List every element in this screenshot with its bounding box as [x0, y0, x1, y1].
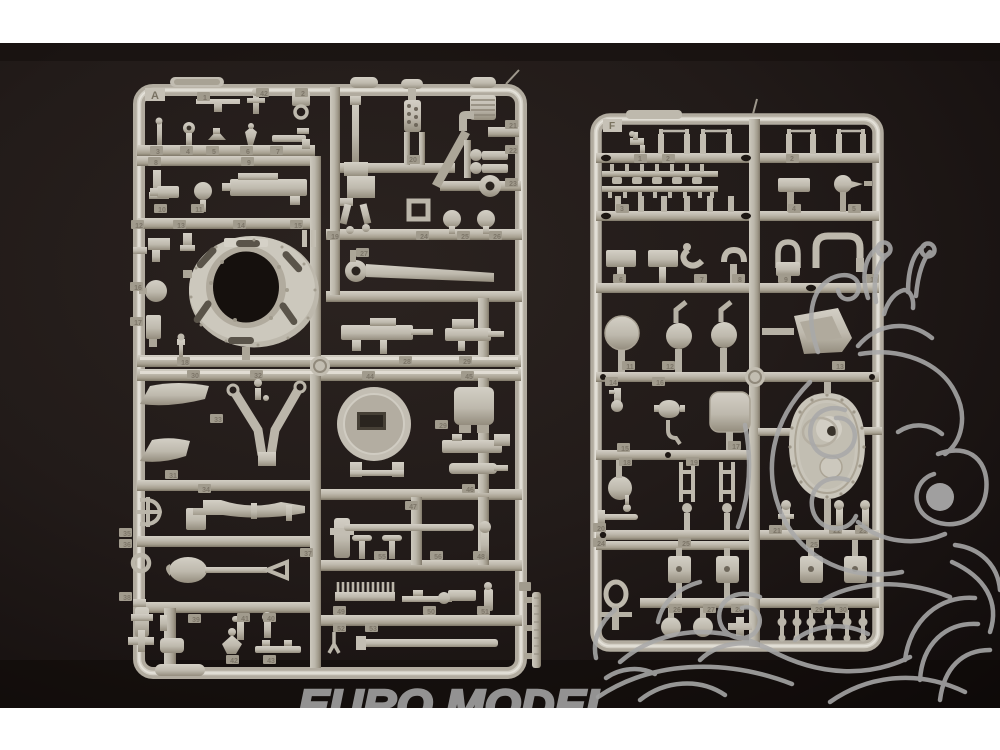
- svg-text:24: 24: [597, 541, 605, 548]
- svg-text:2: 2: [666, 156, 670, 163]
- svg-text:40: 40: [267, 616, 275, 623]
- svg-text:8: 8: [738, 277, 742, 284]
- svg-text:21: 21: [509, 123, 517, 130]
- svg-text:15: 15: [294, 223, 302, 230]
- svg-text:23: 23: [509, 181, 517, 188]
- svg-text:50: 50: [427, 609, 435, 616]
- svg-text:13: 13: [836, 364, 844, 371]
- svg-text:42: 42: [230, 658, 238, 665]
- svg-text:35: 35: [123, 531, 131, 538]
- svg-text:37: 37: [304, 551, 312, 558]
- svg-text:27: 27: [360, 251, 368, 258]
- svg-text:51: 51: [481, 609, 489, 616]
- svg-text:6: 6: [619, 277, 623, 284]
- svg-text:45: 45: [465, 374, 473, 381]
- svg-text:26: 26: [673, 607, 681, 614]
- svg-text:22: 22: [509, 148, 517, 155]
- svg-text:17: 17: [134, 320, 142, 327]
- svg-text:6: 6: [246, 149, 250, 156]
- svg-text:4: 4: [792, 206, 796, 213]
- svg-text:47: 47: [409, 504, 417, 511]
- svg-text:43: 43: [267, 658, 275, 665]
- svg-text:29: 29: [463, 359, 471, 366]
- svg-text:3: 3: [620, 206, 624, 213]
- svg-text:56: 56: [434, 554, 442, 561]
- svg-text:52: 52: [337, 626, 345, 633]
- svg-text:21: 21: [773, 528, 781, 535]
- svg-text:27: 27: [707, 607, 715, 614]
- svg-text:33: 33: [214, 417, 222, 424]
- svg-text:29: 29: [439, 423, 447, 430]
- svg-text:7: 7: [700, 277, 704, 284]
- svg-text:7: 7: [276, 149, 280, 156]
- svg-text:2: 2: [301, 91, 305, 98]
- svg-text:20: 20: [597, 526, 605, 533]
- svg-text:25: 25: [682, 541, 690, 548]
- svg-text:30: 30: [839, 607, 847, 614]
- svg-text:26: 26: [493, 234, 501, 241]
- svg-text:31: 31: [169, 473, 177, 480]
- svg-text:41: 41: [241, 616, 249, 623]
- svg-text:28: 28: [403, 359, 411, 366]
- svg-text:1: 1: [203, 95, 207, 102]
- svg-text:19: 19: [331, 234, 339, 241]
- svg-text:11: 11: [195, 207, 203, 214]
- svg-text:12: 12: [135, 223, 143, 230]
- svg-text:29: 29: [815, 607, 823, 614]
- svg-text:25: 25: [810, 542, 818, 549]
- svg-text:17: 17: [732, 444, 740, 451]
- svg-text:18: 18: [623, 460, 631, 467]
- svg-text:13: 13: [177, 223, 185, 230]
- svg-text:A: A: [151, 90, 159, 102]
- svg-text:53: 53: [369, 626, 377, 633]
- svg-text:9: 9: [247, 160, 251, 167]
- svg-text:30: 30: [191, 373, 199, 380]
- svg-text:55: 55: [378, 554, 386, 561]
- svg-text:15: 15: [621, 446, 629, 453]
- svg-text:39: 39: [192, 617, 200, 624]
- svg-text:16: 16: [134, 285, 142, 292]
- svg-text:34: 34: [202, 487, 210, 494]
- svg-text:18: 18: [181, 360, 189, 367]
- svg-text:4: 4: [186, 149, 190, 156]
- svg-text:11: 11: [626, 364, 634, 371]
- svg-text:5: 5: [212, 149, 216, 156]
- svg-text:24: 24: [420, 234, 428, 241]
- svg-text:36: 36: [123, 542, 131, 549]
- svg-text:14: 14: [609, 380, 617, 387]
- svg-text:32: 32: [254, 373, 262, 380]
- svg-text:48: 48: [477, 554, 485, 561]
- svg-text:8: 8: [154, 160, 158, 167]
- svg-text:49: 49: [337, 609, 345, 616]
- svg-text:19: 19: [690, 460, 698, 467]
- svg-text:25: 25: [461, 234, 469, 241]
- svg-text:42: 42: [260, 91, 268, 98]
- svg-text:5: 5: [852, 206, 856, 213]
- svg-text:44: 44: [366, 374, 374, 381]
- svg-text:9: 9: [784, 277, 788, 284]
- svg-text:2: 2: [790, 156, 794, 163]
- svg-text:38: 38: [123, 595, 131, 602]
- svg-text:14: 14: [237, 223, 245, 230]
- svg-text:12: 12: [666, 364, 674, 371]
- svg-text:3: 3: [156, 149, 160, 156]
- svg-text:16: 16: [656, 380, 664, 387]
- svg-text:10: 10: [158, 207, 166, 214]
- svg-text:20: 20: [409, 157, 417, 164]
- svg-text:1: 1: [638, 156, 642, 163]
- svg-text:46: 46: [466, 487, 474, 494]
- svg-text:F: F: [609, 121, 615, 132]
